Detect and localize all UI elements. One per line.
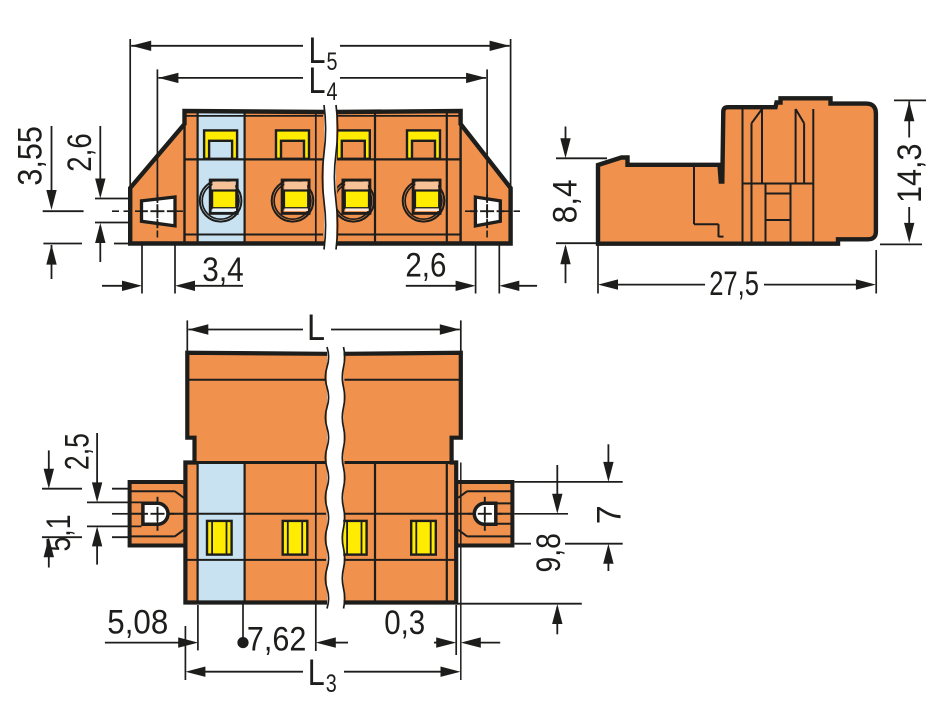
svg-text:27,5: 27,5	[709, 265, 759, 303]
svg-text:2,6: 2,6	[61, 133, 99, 171]
svg-text:2,6: 2,6	[405, 247, 446, 285]
svg-text:5: 5	[327, 48, 338, 76]
svg-text:3,4: 3,4	[202, 251, 243, 289]
svg-text:3: 3	[326, 670, 337, 698]
svg-text:L: L	[307, 307, 325, 348]
svg-text:8,4: 8,4	[546, 179, 584, 223]
svg-text:0,3: 0,3	[384, 604, 425, 642]
svg-text:L: L	[309, 60, 326, 101]
svg-text:L: L	[308, 652, 325, 693]
svg-text:14,3: 14,3	[891, 144, 929, 204]
svg-text:3,55: 3,55	[12, 126, 50, 186]
svg-text:7,62: 7,62	[247, 620, 307, 658]
svg-text:4: 4	[327, 78, 338, 106]
svg-text:7: 7	[590, 505, 628, 524]
svg-text:2,5: 2,5	[58, 433, 96, 470]
svg-text:5,08: 5,08	[107, 604, 168, 642]
svg-text:9,8: 9,8	[530, 533, 568, 572]
svg-text:5,1: 5,1	[40, 515, 78, 552]
